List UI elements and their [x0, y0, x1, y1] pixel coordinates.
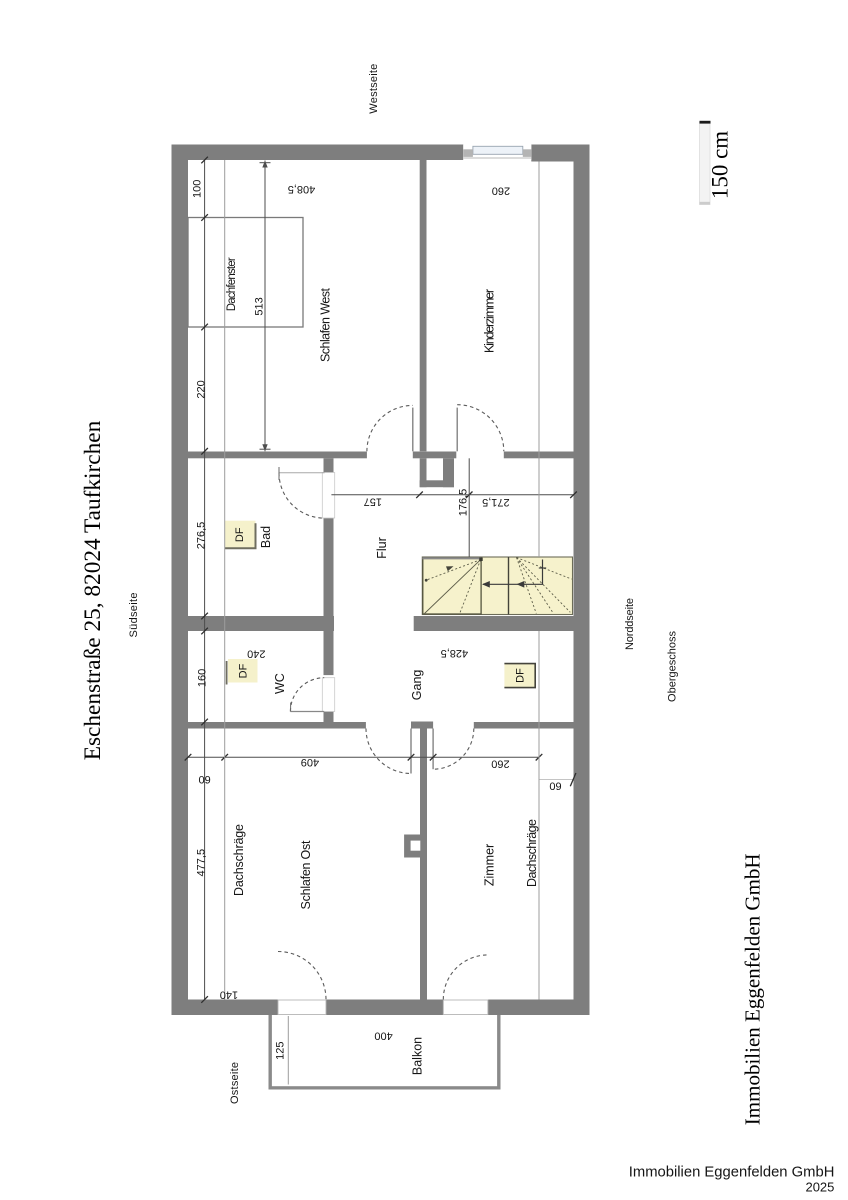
svg-text:Schlafen West: Schlafen West: [318, 287, 332, 362]
svg-text:220: 220: [195, 380, 207, 398]
svg-text:60: 60: [549, 780, 561, 792]
svg-text:176,5: 176,5: [457, 489, 469, 517]
svg-text:DF: DF: [514, 668, 526, 683]
svg-text:60: 60: [198, 773, 210, 785]
svg-text:2025: 2025: [805, 1180, 834, 1195]
svg-text:Obergeschoss: Obergeschoss: [666, 631, 678, 703]
svg-text:409: 409: [301, 756, 319, 768]
svg-text:125: 125: [275, 1042, 287, 1060]
svg-text:276,5: 276,5: [195, 522, 207, 550]
svg-text:100: 100: [191, 180, 203, 198]
svg-text:400: 400: [374, 1030, 392, 1042]
svg-text:271,5: 271,5: [482, 496, 510, 508]
svg-text:Gang: Gang: [410, 670, 424, 701]
svg-text:Schlafen Ost: Schlafen Ost: [299, 840, 313, 910]
svg-text:428,5: 428,5: [441, 647, 469, 659]
svg-text:Immobilien Eggenfelden GmbH: Immobilien Eggenfelden GmbH: [740, 853, 764, 1125]
svg-text:Dachschräge: Dachschräge: [525, 819, 539, 887]
svg-text:Kinderzimmer: Kinderzimmer: [482, 289, 496, 353]
svg-text:Immobilien Eggenfelden GmbH: Immobilien Eggenfelden GmbH: [629, 1165, 835, 1181]
svg-text:DF: DF: [237, 663, 249, 678]
svg-text:Südseite: Südseite: [128, 593, 140, 638]
svg-text:Norddseite: Norddseite: [624, 598, 636, 650]
svg-text:513: 513: [254, 297, 266, 315]
svg-text:Westseite: Westseite: [368, 64, 380, 114]
svg-text:Eschenstraße 25, 82024 Taufkir: Eschenstraße 25, 82024 Taufkirchen: [80, 420, 106, 760]
svg-text:477,5: 477,5: [196, 849, 208, 877]
svg-text:240: 240: [247, 648, 265, 660]
svg-text:Dachschräge: Dachschräge: [232, 824, 246, 896]
svg-text:Dachfenster: Dachfenster: [226, 257, 238, 311]
svg-text:Ostseite: Ostseite: [229, 1062, 241, 1104]
svg-text:260: 260: [491, 758, 509, 770]
svg-text:150 cm: 150 cm: [708, 131, 733, 199]
svg-text:Balkon: Balkon: [411, 1037, 425, 1075]
svg-text:WC: WC: [273, 673, 287, 694]
svg-text:157: 157: [364, 496, 382, 508]
svg-text:160: 160: [197, 669, 209, 687]
svg-text:260: 260: [492, 184, 510, 196]
svg-text:Zimmer: Zimmer: [483, 844, 497, 886]
svg-text:408,5: 408,5: [288, 183, 316, 195]
svg-text:Flur: Flur: [375, 537, 389, 559]
svg-text:140: 140: [220, 989, 238, 1001]
svg-text:DF: DF: [234, 527, 246, 542]
svg-text:Bad: Bad: [259, 526, 273, 548]
